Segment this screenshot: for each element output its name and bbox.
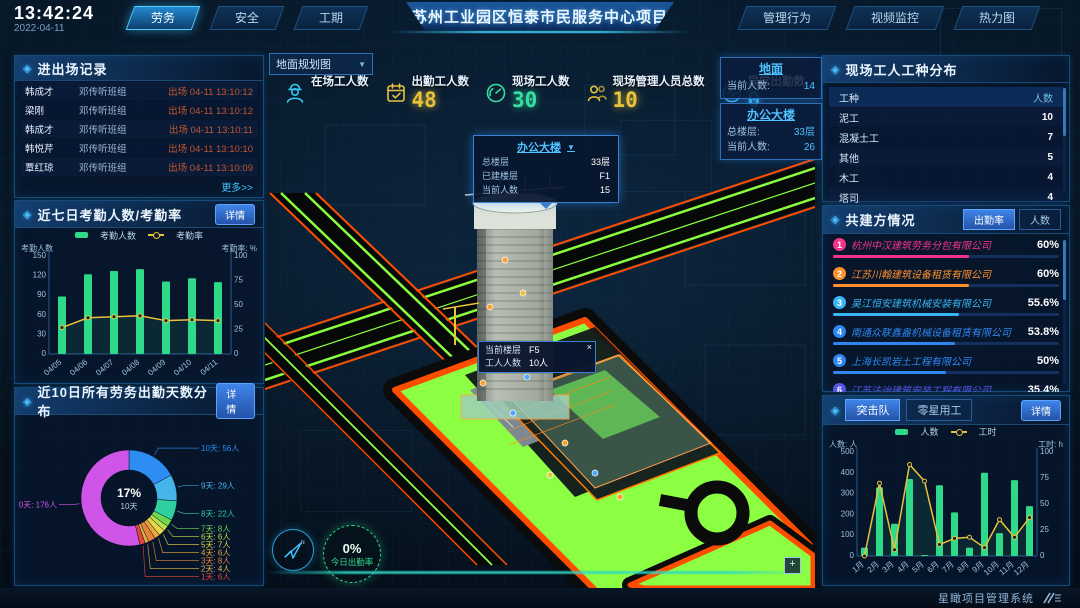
footer: 星瞰项目管理系统 bbox=[0, 588, 1080, 608]
stat-value: 30 bbox=[512, 90, 570, 111]
worker-icon bbox=[283, 81, 307, 105]
legend-swatch bbox=[895, 429, 908, 435]
panel-partners: ◈ 共建方情况 出勤率 人数 1杭州中汉建筑劳务分包有限公司60%2江苏川翰建筑… bbox=[822, 205, 1070, 392]
svg-text:5月: 5月 bbox=[910, 560, 925, 575]
tab-heatmap[interactable]: 热力图 bbox=[954, 6, 1041, 30]
svg-text:0: 0 bbox=[1040, 551, 1045, 560]
legend-label: 考勤率 bbox=[176, 229, 203, 242]
diamond-icon: ◈ bbox=[23, 395, 31, 408]
svg-text:04/07: 04/07 bbox=[94, 357, 116, 377]
svg-text:考勤率: %: 考勤率: % bbox=[221, 243, 257, 253]
compass-icon[interactable]: N bbox=[272, 529, 314, 571]
region-card-title: 办公大楼 bbox=[727, 106, 815, 123]
svg-text:04/10: 04/10 bbox=[172, 357, 194, 377]
region-card-office-tower[interactable]: 办公大楼 总楼层: 33层 当前人数: 26 bbox=[720, 103, 822, 160]
legend-swatch bbox=[148, 234, 164, 236]
chevron-down-icon: ▼ bbox=[358, 60, 366, 69]
assault-team-chart: 01002003004005000255075100人数: 人工时: h1月2月… bbox=[827, 438, 1065, 582]
people-icon bbox=[585, 81, 609, 105]
partner-list: 1杭州中汉建筑劳务分包有限公司60%2江苏川翰建筑设备租赁有限公司60%3吴江恒… bbox=[823, 234, 1069, 392]
svg-text:0: 0 bbox=[42, 349, 47, 358]
tab-headcount[interactable]: 人数 bbox=[1019, 209, 1061, 230]
tooltip-row-value: 33层 bbox=[591, 155, 610, 169]
panel-attendance-7d: ◈ 近七日考勤人数/考勤率 详情 考勤人数考勤率 030609012015002… bbox=[14, 200, 264, 384]
trade-row: 混凝土工7 bbox=[829, 128, 1063, 147]
building-tooltip[interactable]: 办公大楼 ▼ 总楼层 33层 已建楼层 F1 当前人数 15 bbox=[473, 135, 619, 203]
tab-management-behavior[interactable]: 管理行为 bbox=[738, 6, 837, 30]
stat-value: 10 bbox=[613, 90, 705, 111]
tooltip-row-value: F1 bbox=[599, 169, 610, 183]
svg-text:8月: 8月 bbox=[955, 560, 970, 575]
tab-label: 视频监控 bbox=[871, 7, 919, 29]
legend-swatch bbox=[951, 431, 967, 433]
stat-label: 在场工人数 bbox=[311, 73, 369, 89]
tooltip-row-label: 已建楼层 bbox=[482, 169, 518, 183]
svg-text:04/09: 04/09 bbox=[146, 357, 168, 377]
svg-text:0天: 176人: 0天: 176人 bbox=[19, 501, 57, 510]
svg-text:300: 300 bbox=[841, 489, 855, 498]
calendar-check-icon bbox=[384, 81, 408, 105]
panel-title: 进出场记录 bbox=[37, 59, 107, 78]
tab-label: 安全 bbox=[235, 7, 259, 29]
map-layer-label: 地面规划图 bbox=[276, 56, 331, 72]
region-card-ground[interactable]: 地面 当前人数: 14 bbox=[720, 57, 822, 99]
svg-text:0: 0 bbox=[234, 349, 239, 358]
svg-text:50: 50 bbox=[234, 300, 243, 309]
tab-safety[interactable]: 安全 bbox=[210, 6, 285, 30]
badge-label: 今日出勤率 bbox=[331, 556, 374, 568]
diamond-icon: ◈ bbox=[23, 62, 31, 75]
legend-label: 考勤人数 bbox=[100, 229, 136, 242]
svg-text:50: 50 bbox=[1040, 499, 1049, 508]
top-bar: 13:42:24 2022-04-11 劳务 安全 工期 苏州工业园区恒泰市民服… bbox=[0, 0, 1080, 42]
map-layer-select[interactable]: 地面规划图 ▼ bbox=[269, 53, 373, 75]
tab-labor[interactable]: 劳务 bbox=[126, 6, 201, 30]
legend-swatch bbox=[75, 232, 88, 238]
scrollbar[interactable] bbox=[1063, 88, 1066, 194]
diamond-icon: ◈ bbox=[831, 63, 839, 76]
gauge-icon bbox=[484, 81, 508, 105]
svg-text:30: 30 bbox=[37, 329, 46, 338]
svg-text:04/05: 04/05 bbox=[42, 357, 64, 377]
attendance-7d-chart: 03060901201500255075100考勤人数考勤率: %04/0504… bbox=[19, 242, 259, 380]
svg-text:N: N bbox=[301, 540, 305, 546]
detail-button[interactable]: 详情 bbox=[215, 204, 255, 225]
svg-text:10天: 56人: 10天: 56人 bbox=[201, 444, 239, 453]
svg-text:3月: 3月 bbox=[880, 560, 895, 575]
svg-text:90: 90 bbox=[37, 290, 46, 299]
footer-logo bbox=[1042, 591, 1062, 605]
stat-site-workers: 现场工人数 30 bbox=[484, 73, 570, 111]
trade-row: 其他5 bbox=[829, 148, 1063, 167]
tab-video-monitor[interactable]: 视频监控 bbox=[846, 6, 945, 30]
svg-text:75: 75 bbox=[234, 276, 243, 285]
tab-label: 热力图 bbox=[979, 7, 1015, 29]
panel-assault-team: ◈ 突击队 零星用工 详情 人数工时 010020030040050002550… bbox=[822, 395, 1070, 586]
attendance-days-donut: 10天: 56人9天: 29人8天: 22人7天: 8人6天: 6人5天: 7人… bbox=[17, 416, 261, 584]
time-text: 13:42:24 bbox=[14, 4, 94, 23]
tooltip-row-label: 当前楼层 bbox=[485, 344, 521, 357]
more-link[interactable]: 更多>> bbox=[15, 177, 263, 194]
date-text: 2022-04-11 bbox=[14, 24, 94, 35]
partner-tabs: 出勤率 人数 bbox=[963, 209, 1061, 230]
partner-item: 2江苏川翰建筑设备租赁有限公司60% bbox=[833, 265, 1059, 294]
svg-text:考勤人数: 考勤人数 bbox=[21, 243, 53, 253]
tab-label: 劳务 bbox=[151, 7, 175, 29]
detail-button[interactable]: 详情 bbox=[1021, 400, 1061, 421]
entry-exit-row: 覃红琼邓传听班组出场 04-11 13:10:09 bbox=[21, 158, 257, 176]
tab-label: 管理行为 bbox=[763, 7, 811, 29]
panel-title: 现场工人工种分布 bbox=[845, 60, 957, 79]
svg-text:25: 25 bbox=[1040, 525, 1049, 534]
svg-text:2月: 2月 bbox=[865, 560, 880, 575]
card-row-label: 当前人数: bbox=[727, 79, 770, 94]
entry-exit-row: 梁刚邓传听班组出场 04-11 13:10:12 bbox=[21, 101, 257, 119]
diamond-icon: ◈ bbox=[23, 208, 31, 221]
compass-arrow-icon: N bbox=[280, 537, 306, 563]
svg-text:75: 75 bbox=[1040, 473, 1049, 482]
today-attendance-badge: 0% 今日出勤率 bbox=[323, 525, 381, 583]
viewport-glow-line bbox=[265, 571, 813, 574]
diamond-icon: ◈ bbox=[831, 213, 839, 226]
tooltip-row-value: 15 bbox=[600, 183, 610, 197]
svg-text:120: 120 bbox=[33, 271, 47, 280]
floor-tooltip[interactable]: × 当前楼层 F5 工人人数 10人 bbox=[478, 341, 596, 373]
legend-label: 人数 bbox=[920, 425, 938, 438]
partner-item: 6江苏法诒建筑安装工程有限公司35.4% bbox=[833, 381, 1059, 392]
trade-row: 泥工10 bbox=[829, 108, 1063, 127]
partner-item: 5上海长凯岩土工程有限公司50% bbox=[833, 352, 1059, 381]
panel-title: 近七日考勤人数/考勤率 bbox=[37, 205, 182, 224]
svg-text:1天: 6人: 1天: 6人 bbox=[201, 573, 230, 582]
svg-text:60: 60 bbox=[37, 310, 46, 319]
banner-underline bbox=[390, 31, 690, 33]
partner-item: 1杭州中汉建筑劳务分包有限公司60% bbox=[833, 236, 1059, 265]
dashboard-root: 13:42:24 2022-04-11 劳务 安全 工期 苏州工业园区恒泰市民服… bbox=[0, 0, 1080, 608]
tooltip-row-label: 当前人数 bbox=[482, 183, 518, 197]
card-row-value: 26 bbox=[804, 140, 815, 155]
tab-schedule[interactable]: 工期 bbox=[294, 6, 369, 30]
stat-managers-total: 现场管理人员总数 10 bbox=[585, 73, 705, 111]
svg-text:17%: 17% bbox=[117, 486, 141, 500]
legend-label: 工时 bbox=[979, 425, 997, 438]
svg-text:12月: 12月 bbox=[1012, 560, 1031, 578]
partner-item: 3吴江恒安建筑机械安装有限公司55.6% bbox=[833, 294, 1059, 323]
svg-text:400: 400 bbox=[841, 468, 855, 477]
trades-table: 泥工10混凝土工7其他5木工4塔司4 bbox=[823, 108, 1069, 207]
svg-text:0: 0 bbox=[850, 551, 855, 560]
tooltip-row-value: 10人 bbox=[529, 357, 548, 370]
stat-attending-workers: 出勤工人数 48 bbox=[384, 73, 470, 111]
card-row-value: 33层 bbox=[794, 125, 815, 140]
tab-odd-jobs[interactable]: 零星用工 bbox=[906, 399, 972, 421]
svg-text:7月: 7月 bbox=[940, 560, 955, 575]
stat-label: 出勤工人数 bbox=[412, 73, 470, 89]
project-title-banner: 苏州工业园区恒泰市民服务中心项目 bbox=[406, 2, 674, 30]
nav-right: 管理行为 视频监控 热力图 bbox=[742, 6, 1036, 30]
svg-text:工时: h: 工时: h bbox=[1038, 439, 1063, 449]
diamond-icon: ◈ bbox=[831, 404, 839, 417]
svg-text:8天: 22人: 8天: 22人 bbox=[201, 509, 235, 518]
trades-table-header: 工种人数 bbox=[829, 87, 1063, 107]
region-card-title: 地面 bbox=[727, 60, 815, 77]
svg-text:25: 25 bbox=[234, 325, 243, 334]
stat-onsite-workers: 在场工人数 bbox=[283, 73, 369, 111]
scrollbar[interactable] bbox=[1063, 240, 1066, 384]
svg-text:200: 200 bbox=[841, 509, 855, 518]
svg-text:10天: 10天 bbox=[121, 502, 138, 511]
entry-exit-table: 韩成才邓传听班组出场 04-11 13:10:12梁刚邓传听班组出场 04-11… bbox=[15, 82, 263, 176]
clock: 13:42:24 2022-04-11 bbox=[14, 4, 94, 34]
entry-exit-row: 韩成才邓传听班组出场 04-11 13:10:11 bbox=[21, 120, 257, 138]
panel-attendance-days: ◈ 近10日所有劳务出勤天数分布 详情 10天: 56人9天: 29人8天: 2… bbox=[14, 387, 264, 586]
entry-exit-row: 韩悦芹邓传听班组出场 04-11 13:10:10 bbox=[21, 139, 257, 157]
tooltip-row-value: F5 bbox=[529, 344, 540, 357]
panel-entry-exit: ◈ 进出场记录 韩成才邓传听班组出场 04-11 13:10:12梁刚邓传听班组… bbox=[14, 55, 264, 198]
trade-row: 木工4 bbox=[829, 168, 1063, 187]
chart-legend: 人数工时 bbox=[823, 425, 1069, 438]
tooltip-row-label: 工人人数 bbox=[485, 357, 521, 370]
stat-label: 现场管理人员总数 bbox=[613, 73, 705, 89]
svg-text:1月: 1月 bbox=[850, 560, 865, 575]
svg-text:04/08: 04/08 bbox=[120, 357, 142, 377]
svg-text:4月: 4月 bbox=[895, 560, 910, 575]
nav-left: 劳务 安全 工期 bbox=[130, 6, 364, 30]
svg-text:04/06: 04/06 bbox=[68, 357, 90, 377]
footer-brand: 星瞰项目管理系统 bbox=[938, 590, 1034, 606]
page-title: 苏州工业园区恒泰市民服务中心项目 bbox=[412, 6, 668, 27]
svg-text:04/11: 04/11 bbox=[199, 357, 220, 377]
svg-text:100: 100 bbox=[841, 530, 855, 539]
entry-exit-row: 韩成才邓传听班组出场 04-11 13:10:12 bbox=[21, 82, 257, 100]
chevron-down-icon[interactable]: ▼ bbox=[567, 143, 575, 152]
stat-value: 48 bbox=[412, 90, 470, 111]
fullscreen-icon[interactable]: + bbox=[784, 557, 801, 574]
panel-title: 共建方情况 bbox=[845, 210, 915, 229]
svg-text:人数: 人: 人数: 人 bbox=[829, 439, 857, 449]
building-tooltip-title: 办公大楼 bbox=[517, 139, 561, 155]
tab-attendance-rate[interactable]: 出勤率 bbox=[963, 209, 1015, 230]
chart-legend: 考勤人数考勤率 bbox=[15, 228, 263, 242]
tab-assault-team[interactable]: 突击队 bbox=[845, 399, 900, 421]
panel-trades: ◈ 现场工人工种分布 工种人数 泥工10混凝土工7其他5木工4塔司4 bbox=[822, 55, 1070, 202]
partner-item: 4南通众联鑫盎机械设备租赁有限公司53.8% bbox=[833, 323, 1059, 352]
svg-text:6月: 6月 bbox=[925, 560, 940, 575]
tooltip-row-label: 总楼层 bbox=[482, 155, 509, 169]
card-row-value: 14 bbox=[804, 79, 815, 94]
svg-text:11月: 11月 bbox=[998, 560, 1016, 577]
panel-title: 近10日所有劳务出勤天数分布 bbox=[37, 382, 210, 420]
badge-value: 0% bbox=[343, 541, 362, 556]
detail-button[interactable]: 详情 bbox=[216, 383, 255, 419]
close-icon[interactable]: × bbox=[587, 342, 592, 352]
svg-text:9天: 29人: 9天: 29人 bbox=[201, 481, 235, 490]
card-row-label: 总楼层: bbox=[727, 125, 760, 140]
stat-label: 现场工人数 bbox=[512, 73, 570, 89]
site-3d-view[interactable]: 地面规划图 ▼ 在场工人数 出勤工人 bbox=[265, 45, 815, 588]
card-row-label: 当前人数: bbox=[727, 140, 770, 155]
tab-label: 工期 bbox=[319, 7, 343, 29]
